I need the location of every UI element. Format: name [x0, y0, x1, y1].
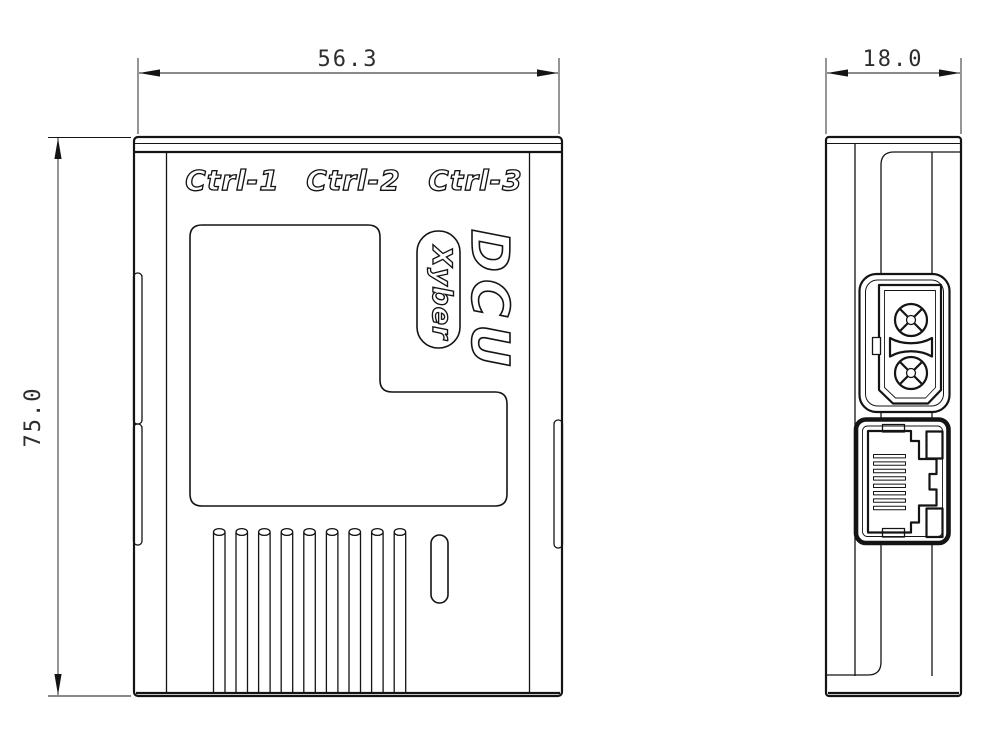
- status-led-slot: [431, 535, 448, 603]
- vent-slot: [326, 529, 338, 694]
- height-value: 75.0: [21, 387, 46, 448]
- front-view: Ctrl-1 Ctrl-2 Ctrl-3 DCU Xyber: [134, 137, 563, 696]
- pin-hub: [907, 316, 916, 325]
- rj45-bezel: [856, 420, 949, 544]
- technical-drawing: Ctrl-1 Ctrl-2 Ctrl-3 DCU Xyber: [0, 0, 1000, 737]
- vent-slot: [349, 529, 361, 694]
- drawing-sheet: Ctrl-1 Ctrl-2 Ctrl-3 DCU Xyber: [0, 0, 1000, 737]
- port-labels: Ctrl-1 Ctrl-2 Ctrl-3: [185, 164, 522, 197]
- front-outline: [134, 137, 562, 696]
- vent-slots: [214, 529, 406, 694]
- width-value: 56.3: [318, 47, 379, 72]
- dimension-height: 75.0: [21, 138, 131, 697]
- pin-hub: [907, 369, 916, 378]
- branding: DCU Xyber: [417, 229, 519, 374]
- brand-logo: Xyber: [426, 244, 457, 341]
- arrowhead-right: [939, 69, 960, 76]
- product-logo: DCU: [459, 229, 519, 374]
- arrowhead-right: [537, 69, 558, 76]
- arrowhead-top: [54, 138, 61, 159]
- vent-slot: [281, 529, 293, 694]
- depth-value: 18.0: [863, 47, 924, 72]
- side-face-plate: [827, 152, 961, 675]
- arrowhead-left: [139, 69, 160, 76]
- ctrl-2-label: Ctrl-2: [306, 164, 400, 197]
- dimension-depth: 18.0: [826, 47, 961, 134]
- rj45-ethernet-port: [856, 420, 949, 544]
- vent-slot: [214, 529, 226, 694]
- vent-slot: [372, 529, 384, 694]
- arrowhead-left: [827, 69, 848, 76]
- vent-slot: [259, 529, 271, 694]
- ctrl-3-label: Ctrl-3: [428, 164, 522, 197]
- xt30-key-notch: [873, 338, 881, 355]
- ctrl-1-label: Ctrl-1: [185, 164, 279, 197]
- arrowhead-bottom: [54, 674, 61, 695]
- vent-slot: [236, 529, 248, 694]
- xt30-power-connector: [860, 274, 950, 412]
- side-view: [826, 137, 961, 696]
- side-outline: [826, 137, 961, 696]
- vent-slot: [394, 529, 406, 694]
- vent-slot: [304, 529, 316, 694]
- dimension-width: 56.3: [138, 47, 559, 134]
